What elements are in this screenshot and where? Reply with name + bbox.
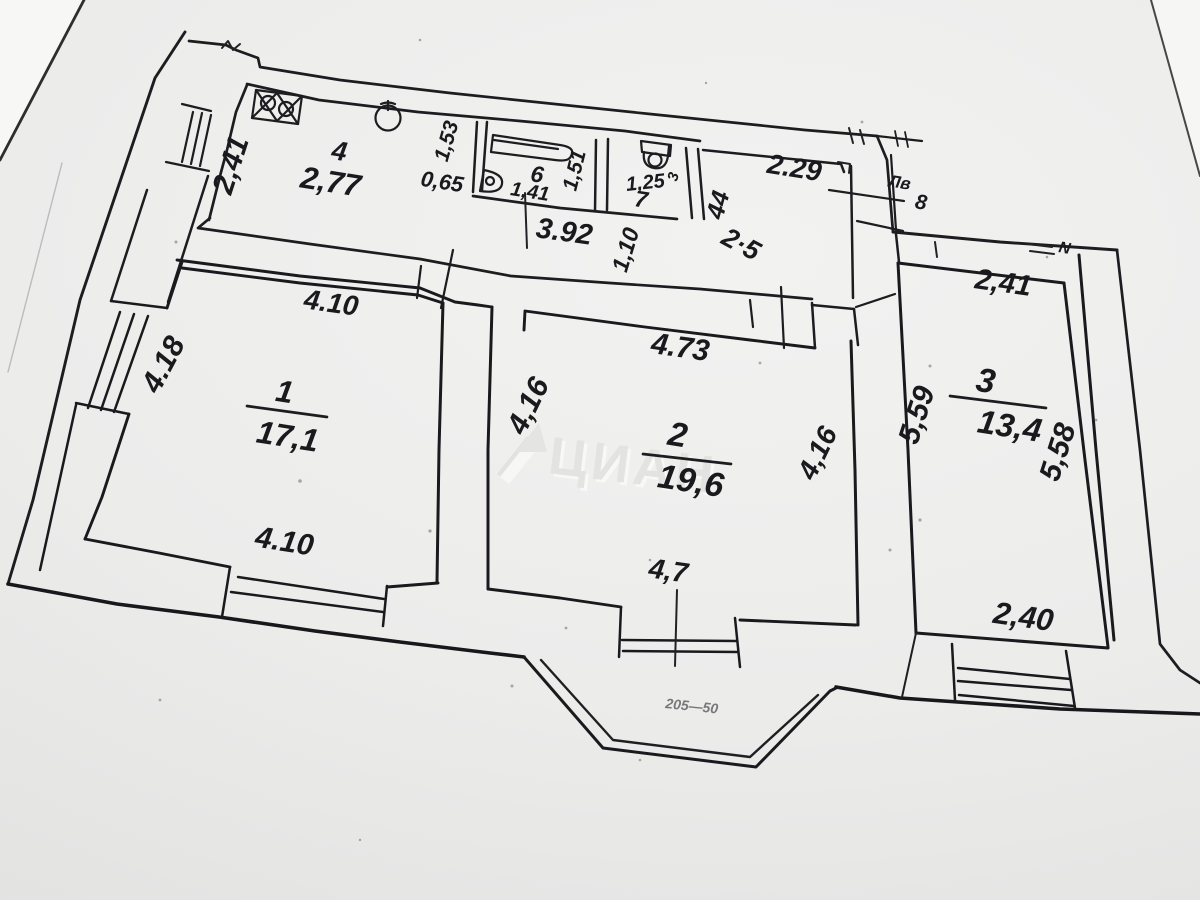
svg-text:3: 3 xyxy=(973,361,998,402)
svg-text:Лв: Лв xyxy=(886,171,913,194)
svg-text:5,59: 5,59 xyxy=(892,382,942,448)
svg-text:1,53: 1,53 xyxy=(430,118,463,164)
svg-text:4.10: 4.10 xyxy=(301,283,361,321)
svg-text:44: 44 xyxy=(701,188,736,223)
svg-text:4.10: 4.10 xyxy=(252,521,316,563)
svg-text:2,41: 2,41 xyxy=(206,132,256,199)
svg-text:2,41: 2,41 xyxy=(972,263,1033,303)
svg-text:13,4: 13,4 xyxy=(975,402,1044,449)
svg-text:4.73: 4.73 xyxy=(648,327,712,368)
svg-text:1,10: 1,10 xyxy=(606,224,644,275)
svg-text:17,1: 17,1 xyxy=(254,413,321,458)
svg-text:4.18: 4.18 xyxy=(135,331,192,399)
svg-text:1: 1 xyxy=(273,373,296,410)
svg-text:205—50: 205—50 xyxy=(664,695,720,717)
svg-text:2,77: 2,77 xyxy=(297,159,365,203)
svg-text:1,51: 1,51 xyxy=(559,148,591,193)
svg-text:2.29: 2.29 xyxy=(764,148,824,187)
svg-text:4,7: 4,7 xyxy=(646,552,691,588)
svg-text:2·5: 2·5 xyxy=(716,221,766,267)
svg-text:4,16: 4,16 xyxy=(500,372,556,440)
svg-text:7: 7 xyxy=(633,185,651,213)
svg-text:3.92: 3.92 xyxy=(534,212,594,252)
svg-text:4,16: 4,16 xyxy=(791,421,843,485)
svg-text:3: 3 xyxy=(664,170,683,183)
svg-text:N: N xyxy=(1057,239,1072,258)
svg-text:2,40: 2,40 xyxy=(990,595,1056,638)
svg-text:8: 8 xyxy=(913,190,928,215)
svg-text:0,65: 0,65 xyxy=(419,166,466,198)
svg-text:4: 4 xyxy=(329,135,350,167)
